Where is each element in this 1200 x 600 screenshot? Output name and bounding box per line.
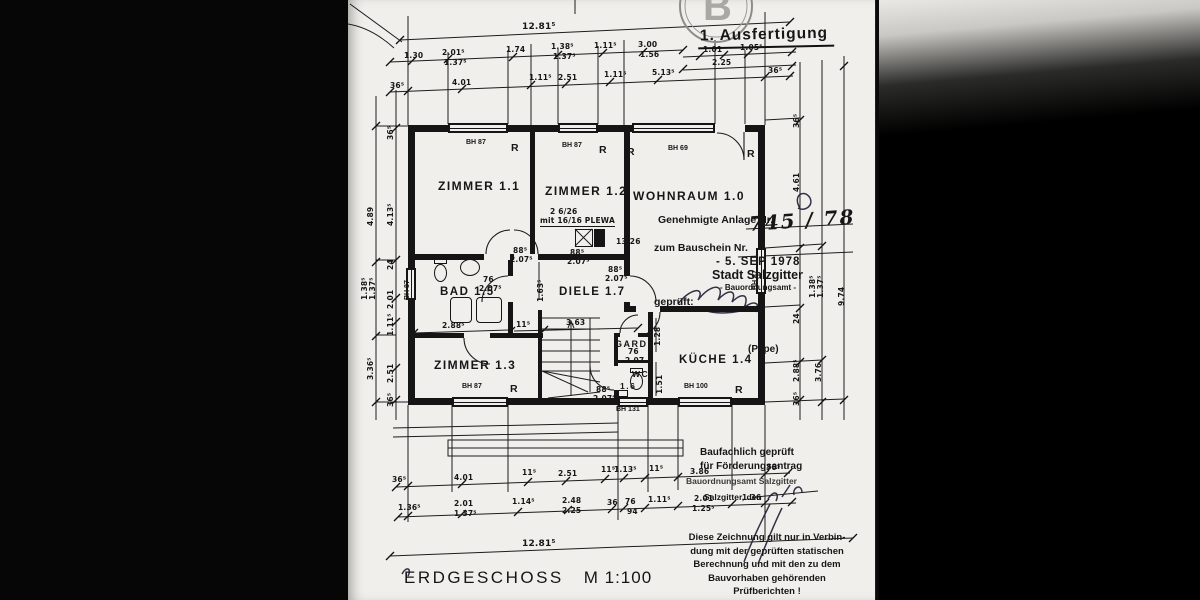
- dimension-label: 88⁵: [608, 265, 622, 274]
- dimension-label: 4.01: [452, 78, 471, 87]
- approval-city: Stadt Salzgitter: [712, 268, 803, 282]
- dimension-label: 2 6/26: [550, 207, 577, 216]
- dimension-label: 2.51: [558, 469, 577, 478]
- dimension-label: 1.37⁵: [454, 509, 477, 518]
- drawing-title: ERDGESCHOSSM 1:100: [404, 568, 652, 588]
- dimension-label: 1.13⁵: [614, 465, 637, 474]
- dimension-label: 4.13⁵: [386, 203, 395, 226]
- dimension-label: 1.11⁵: [529, 73, 552, 82]
- roller-shutter-mark: R: [599, 144, 607, 156]
- dimension-label: 36: [607, 498, 618, 507]
- roller-shutter-mark: R: [511, 142, 519, 154]
- note-line: dung mit der geprüften statischen: [666, 545, 868, 559]
- floor-plan-sheet: B: [348, 0, 875, 600]
- dimension-label: 1.38⁵: [551, 42, 574, 51]
- dimension-label: 1.37⁵: [816, 275, 825, 298]
- dimension-label: 4.89: [366, 207, 375, 226]
- room-label: WOHNRAUM 1.0: [633, 189, 745, 203]
- dimension-label: 3.00: [638, 40, 657, 49]
- dimension-label: 36⁵: [390, 81, 404, 90]
- dimension-label: 2.25: [712, 58, 731, 67]
- dimension-label: 2.07⁵: [510, 255, 533, 264]
- window-height-label: BH 87: [462, 383, 482, 390]
- dimension-label: 36⁵: [768, 66, 782, 75]
- dimension-label: 4.01: [454, 473, 473, 482]
- funding-stamp-line4: Salzgitter, den: [704, 492, 762, 502]
- funding-stamp-line2: für Förderungsantrag: [700, 460, 802, 474]
- window-height-label: BH 131: [616, 406, 640, 413]
- dimension-label: 12.81⁵: [522, 539, 556, 549]
- dimension-label: 36⁵: [792, 392, 801, 406]
- roller-shutter-mark: R: [735, 384, 743, 396]
- dimension-label: 1.51: [655, 375, 664, 394]
- dimension-label: 13/26: [616, 237, 641, 246]
- dimension-label: 1.37⁵: [444, 58, 467, 67]
- window-height-label: BH 87: [466, 139, 486, 146]
- dimension-label: 2.01: [386, 290, 395, 309]
- dimension-label: 36⁵: [386, 126, 395, 140]
- dimension-label: 1.11⁵: [604, 70, 627, 79]
- dimension-label: 1.11⁵: [386, 313, 395, 336]
- dimension-label: 24: [792, 313, 801, 324]
- room-label: DIELE 1.7: [559, 286, 626, 298]
- dimension-label: 1.30: [404, 51, 423, 60]
- dimension-label: mit 16/16 PLEWA: [540, 216, 615, 227]
- dimension-label: 1.36⁵: [398, 503, 421, 512]
- dimension-label: 76: [483, 275, 494, 284]
- dimension-label: 88⁵: [570, 248, 584, 257]
- room-label: GARD.: [615, 339, 652, 349]
- dimension-label: 94: [627, 507, 638, 516]
- dimension-label: 1.11⁵: [648, 495, 671, 504]
- dimension-label: 36⁵: [392, 475, 406, 484]
- black-border-left: [0, 0, 348, 600]
- validity-note: Diese Zeichnung gilt nur in Verbin- dung…: [666, 531, 868, 599]
- dimension-label: 2.25: [562, 506, 581, 515]
- dimension-label: 2.07⁵: [567, 257, 590, 266]
- dimension-label: 11⁵: [649, 464, 663, 473]
- dimension-label: 5.13⁵: [652, 68, 675, 77]
- dimension-label: 2.07⁵: [605, 274, 628, 283]
- annotations-layer: 12.81⁵1.302.01⁵1.37⁵1.741.38⁵1.37⁵1.11⁵3…: [348, 0, 875, 600]
- window-height-label: BH 69: [668, 145, 688, 152]
- dimension-label: 88⁵: [513, 246, 527, 255]
- dimension-label: 76: [625, 497, 636, 506]
- scanned-blueprint-photo: B: [0, 0, 1200, 600]
- window-height-label: BH 87: [404, 280, 411, 300]
- dimension-label: 24: [386, 259, 395, 270]
- dimension-label: 1.63⁵: [536, 279, 545, 302]
- roller-shutter-mark: R: [747, 148, 755, 160]
- dimension-label: 1.56: [640, 50, 659, 59]
- checker-name: (Pape): [748, 344, 779, 355]
- approval-office: - Bauordnungsamt -: [720, 283, 796, 292]
- drawing-scale: M 1:100: [584, 568, 652, 587]
- dimension-label: 2.51: [558, 73, 577, 82]
- dimension-label: 2.48: [562, 496, 581, 505]
- funding-stamp-line1: Baufachlich geprüft: [700, 446, 802, 460]
- room-label: 1.6: [620, 381, 636, 391]
- room-label: ZIMMER 1.1: [438, 179, 520, 193]
- dimension-label: 4.61: [792, 173, 801, 192]
- window-height-label: BH 100: [684, 383, 708, 390]
- approval-stamp-line2: zum Bauschein Nr.: [654, 242, 748, 254]
- dimension-label: 2.88⁵: [792, 359, 801, 382]
- dimension-label: 2.01: [454, 499, 473, 508]
- roller-shutter-mark: R: [627, 146, 635, 158]
- dimension-label: 1.74: [506, 45, 525, 54]
- room-label: ZIMMER 1.2: [545, 184, 627, 198]
- checked-label: geprüft:: [654, 296, 694, 308]
- note-line: Berechnung und mit den zu dem: [666, 558, 868, 572]
- note-line: Bauvorhaben gehörenden: [666, 572, 868, 586]
- dimension-label: 12.81⁵: [522, 22, 556, 32]
- window-height-label: BH 87: [562, 142, 582, 149]
- approval-date-stamp: - 5. SEP 1978: [716, 256, 800, 268]
- dimension-label: 2.88⁵: [442, 321, 465, 330]
- note-line: Diese Zeichnung gilt nur in Verbin-: [666, 531, 868, 545]
- room-label: BAD 1.5: [440, 286, 495, 298]
- dimension-label: 11⁵: [522, 468, 536, 477]
- dimension-label: 1.11⁵: [594, 41, 617, 50]
- approval-stamp-line1: Genehmigte Anlage Nr.: [658, 214, 773, 226]
- copy-number-label: 1. Ausfertigung: [698, 25, 835, 50]
- dimension-label: 36⁵: [386, 393, 395, 407]
- room-label: WC: [632, 369, 649, 379]
- dimension-label: 36⁵: [792, 114, 801, 128]
- dimension-label: 9.74: [837, 287, 846, 306]
- dimension-label: 2.01⁵: [442, 48, 465, 57]
- dimension-label: 11⁵: [516, 320, 530, 329]
- dimension-label: 3.36⁵: [366, 357, 375, 380]
- room-label: ZIMMER 1.3: [434, 358, 516, 372]
- dimension-label: 2.07⁵: [593, 394, 616, 403]
- dimension-label: 1.37⁵: [368, 277, 377, 300]
- dimension-label: 3.63: [566, 318, 585, 327]
- dimension-label: 1.25⁵: [692, 504, 715, 513]
- dimension-label: 1.37⁵: [553, 52, 576, 61]
- dimension-label: 3.76: [814, 363, 823, 382]
- funding-stamp-line3: Bauordnungsamt Salzgitter: [686, 476, 797, 486]
- dimension-label: 2.51: [386, 364, 395, 383]
- dimension-label: 88⁵: [596, 385, 610, 394]
- funding-stamp: Baufachlich geprüft für Förderungsantrag: [700, 446, 802, 474]
- dimension-label: 1.14⁵: [512, 497, 535, 506]
- note-line: Prüfberichten !: [666, 585, 868, 599]
- roller-shutter-mark: R: [510, 383, 518, 395]
- floor-name: ERDGESCHOSS: [404, 568, 564, 587]
- dimension-label: 2.07: [625, 356, 644, 365]
- adjacent-page-shadow: [859, 0, 1200, 600]
- dimension-label: 1.28: [653, 327, 662, 346]
- room-label: KÜCHE 1.4: [679, 354, 753, 366]
